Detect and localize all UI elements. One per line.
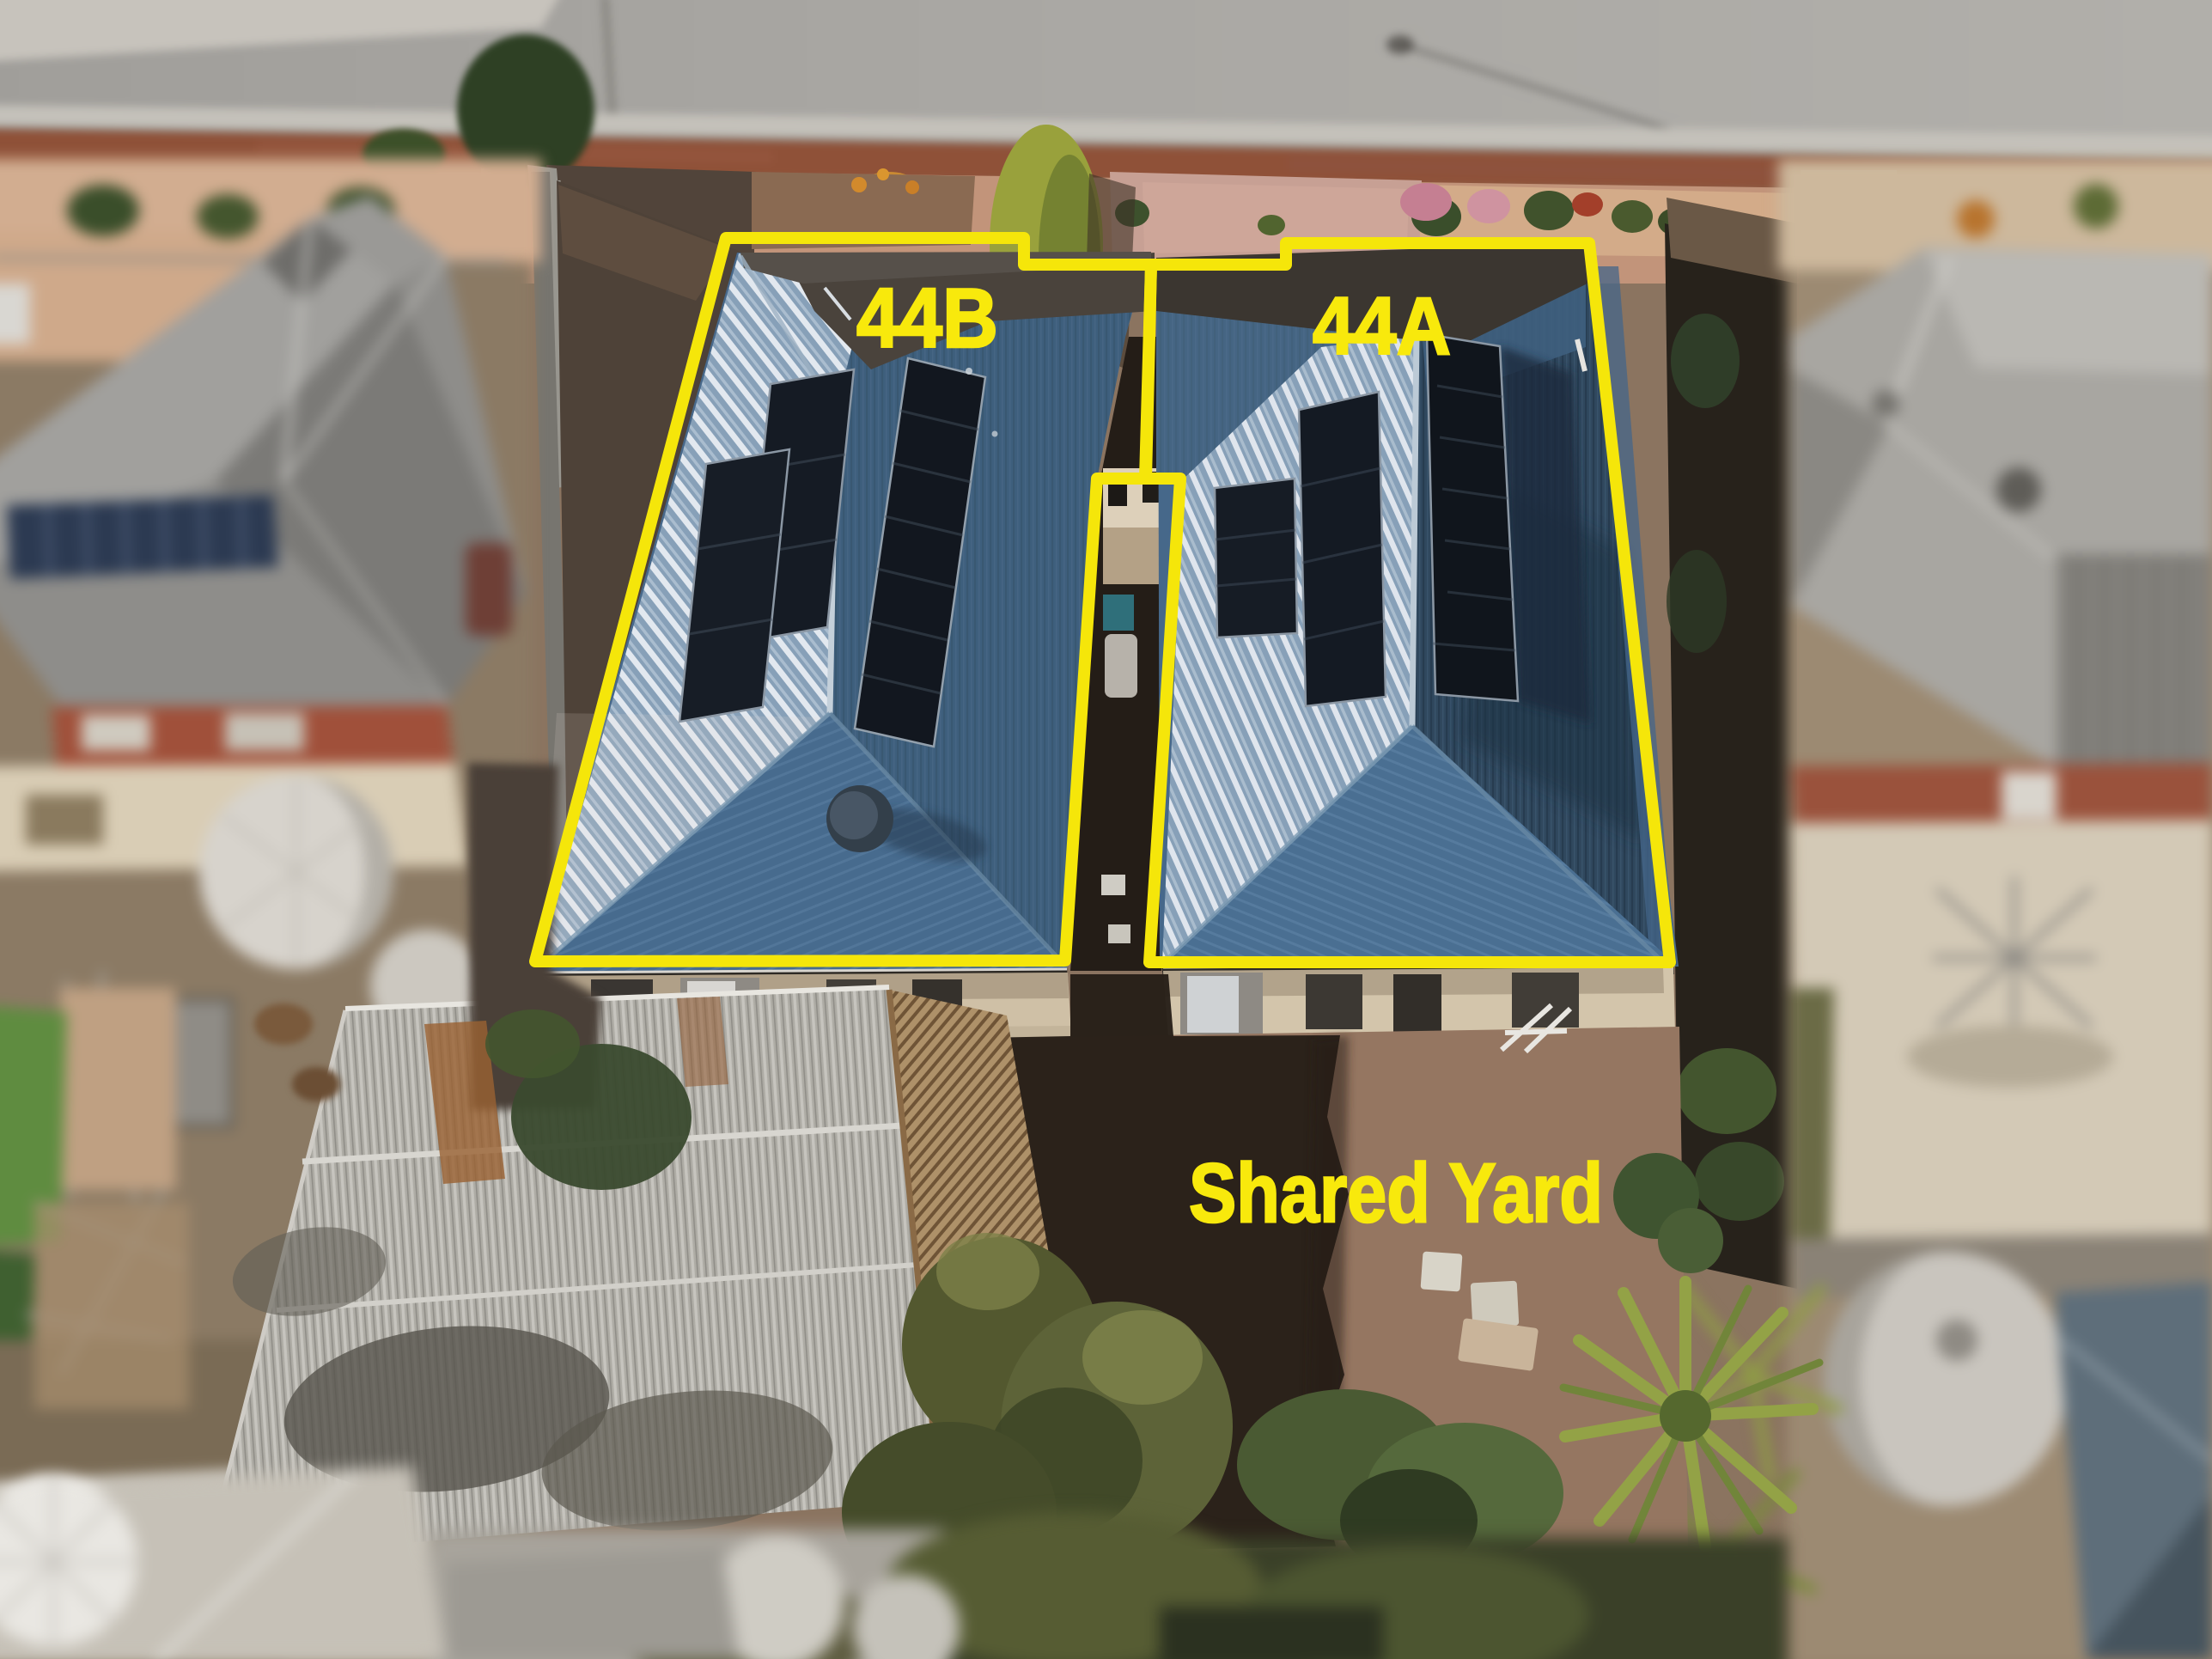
svg-text:Shared Yard: Shared Yard [1189, 1146, 1603, 1240]
svg-text:44B: 44B [856, 271, 998, 365]
svg-text:44A: 44A [1313, 281, 1451, 372]
